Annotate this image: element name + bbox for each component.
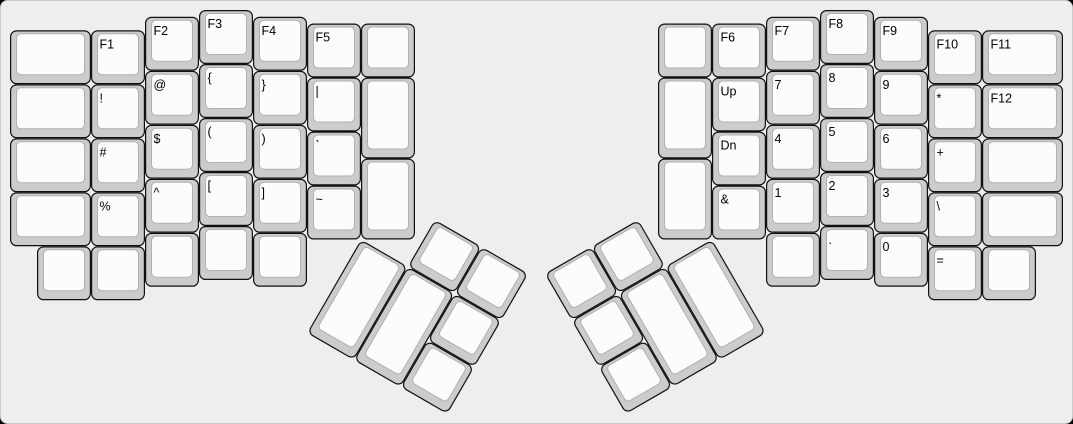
svg-text:%: % bbox=[100, 199, 111, 213]
svg-text:+: + bbox=[937, 145, 944, 159]
svg-text:$: $ bbox=[154, 132, 161, 146]
svg-text:F11: F11 bbox=[991, 37, 1012, 51]
svg-text:F4: F4 bbox=[262, 24, 277, 38]
svg-text:}: } bbox=[262, 78, 266, 92]
svg-text:7: 7 bbox=[775, 78, 782, 92]
svg-text:3: 3 bbox=[883, 186, 890, 200]
svg-text:4: 4 bbox=[775, 132, 782, 146]
svg-text:): ) bbox=[262, 132, 266, 146]
svg-text:F9: F9 bbox=[883, 24, 898, 38]
svg-text:F2: F2 bbox=[154, 24, 169, 38]
svg-text:&: & bbox=[721, 193, 730, 207]
svg-text:!: ! bbox=[100, 91, 103, 105]
svg-text:*: * bbox=[937, 91, 942, 105]
svg-text:9: 9 bbox=[883, 78, 890, 92]
svg-text:F10: F10 bbox=[937, 37, 959, 51]
svg-text:@: @ bbox=[154, 78, 167, 92]
svg-text:Up: Up bbox=[721, 85, 737, 99]
svg-text:~: ~ bbox=[316, 193, 323, 207]
svg-text:F8: F8 bbox=[829, 17, 844, 31]
svg-text:F1: F1 bbox=[100, 37, 115, 51]
svg-text:]: ] bbox=[262, 186, 265, 200]
svg-text:=: = bbox=[937, 253, 944, 267]
svg-text:\: \ bbox=[937, 199, 941, 213]
svg-text:F6: F6 bbox=[721, 31, 736, 45]
svg-text:^: ^ bbox=[154, 186, 160, 200]
svg-text:F12: F12 bbox=[991, 91, 1013, 105]
svg-text:{: { bbox=[208, 71, 212, 85]
svg-text:8: 8 bbox=[829, 71, 836, 85]
svg-text:|: | bbox=[316, 85, 319, 99]
svg-text:F7: F7 bbox=[775, 24, 790, 38]
svg-text:.: . bbox=[829, 233, 832, 247]
svg-text:F5: F5 bbox=[316, 31, 331, 45]
svg-text:F3: F3 bbox=[208, 17, 223, 31]
svg-text:2: 2 bbox=[829, 179, 836, 193]
svg-text:[: [ bbox=[208, 179, 212, 193]
svg-text:`: ` bbox=[316, 139, 320, 153]
svg-text:1: 1 bbox=[775, 186, 782, 200]
svg-text:#: # bbox=[100, 145, 107, 159]
svg-text:Dn: Dn bbox=[721, 139, 737, 153]
svg-text:6: 6 bbox=[883, 132, 890, 146]
svg-text:5: 5 bbox=[829, 125, 836, 139]
svg-text:0: 0 bbox=[883, 240, 890, 254]
